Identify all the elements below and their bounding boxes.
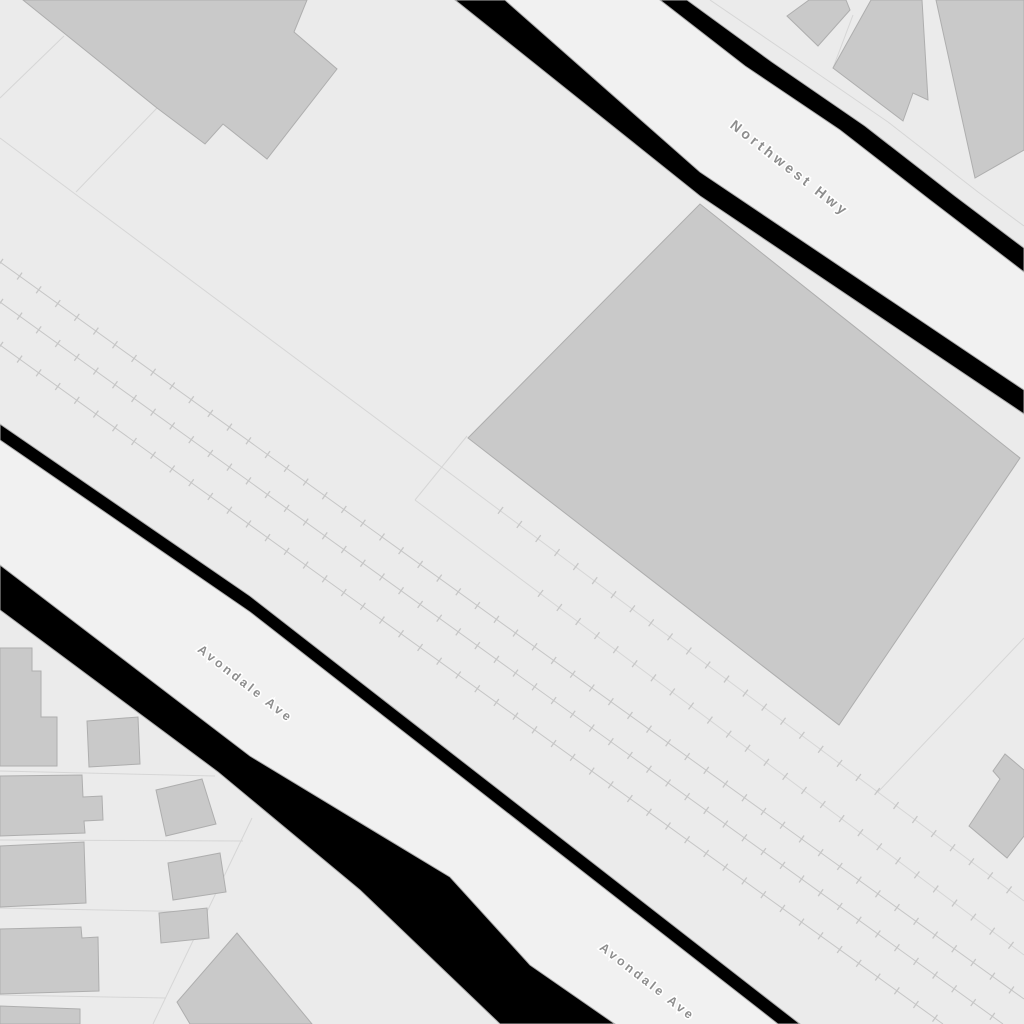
building-house-5 [0, 842, 86, 907]
building-house-7 [159, 908, 209, 943]
map-canvas[interactable]: Northwest Hwy Avondale Ave Avondale Ave [0, 0, 1024, 1024]
building-house-2 [87, 717, 140, 767]
building-house-9 [0, 1006, 80, 1024]
